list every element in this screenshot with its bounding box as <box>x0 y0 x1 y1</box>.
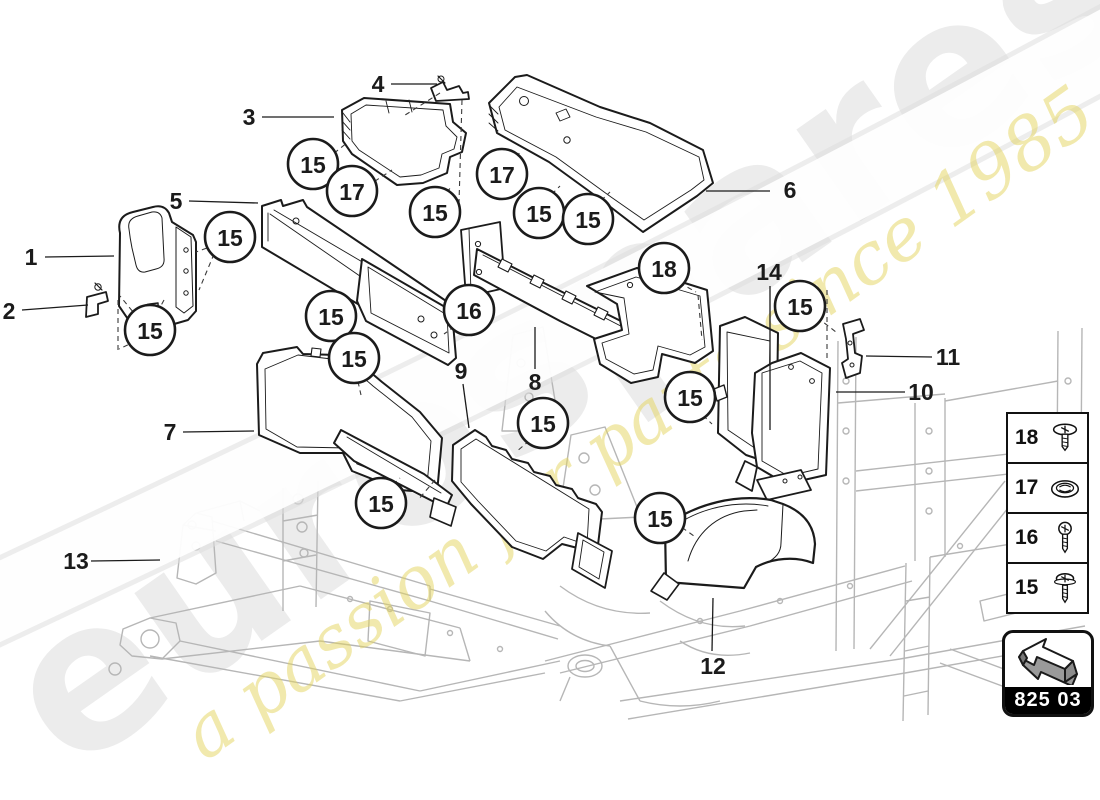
leader-line <box>45 256 114 257</box>
part-label-11: 11 <box>936 344 961 370</box>
leader-line <box>866 356 932 357</box>
part-label-5: 5 <box>170 188 183 214</box>
part-label-2: 2 <box>3 298 16 324</box>
parts-diagram-page: eurosparesa passion for parts since 1985… <box>0 0 1100 800</box>
page-code-box: 825 03 <box>1002 630 1094 717</box>
svg-text:15: 15 <box>422 200 448 226</box>
pan-screw-icon <box>1047 566 1083 610</box>
part-label-8: 8 <box>529 369 542 395</box>
callout-circle[interactable]: 16 <box>444 285 494 335</box>
part-label-9: 9 <box>455 358 468 384</box>
legend-number: 16 <box>1015 526 1038 550</box>
callout-circle[interactable]: 17 <box>327 166 377 216</box>
svg-text:15: 15 <box>341 346 367 372</box>
legend-number: 17 <box>1015 476 1038 500</box>
callout-circle[interactable]: 15 <box>775 281 825 331</box>
svg-text:15: 15 <box>787 294 813 320</box>
part-label-14: 14 <box>756 259 782 285</box>
svg-text:15: 15 <box>368 491 394 517</box>
callout-circle[interactable]: 18 <box>639 243 689 293</box>
svg-text:15: 15 <box>300 152 326 178</box>
callout-circle[interactable]: 15 <box>205 212 255 262</box>
callout-circle[interactable]: 17 <box>477 149 527 199</box>
legend-row-17[interactable]: 17 <box>1008 464 1087 514</box>
page-code: 825 03 <box>1005 687 1091 714</box>
legend-row-18[interactable]: 18 <box>1008 414 1087 464</box>
leader-line <box>189 201 258 203</box>
part-label-7: 7 <box>164 419 177 445</box>
callout-circle[interactable]: 15 <box>665 372 715 422</box>
svg-text:15: 15 <box>677 385 703 411</box>
callout-circle[interactable]: 15 <box>514 188 564 238</box>
fastener-legend: 18171615 <box>1006 412 1089 614</box>
svg-text:17: 17 <box>489 162 515 188</box>
grommet-nut-icon <box>1047 466 1083 510</box>
callout-circle[interactable]: 15 <box>356 478 406 528</box>
legend-row-16[interactable]: 16 <box>1008 514 1087 564</box>
callout-circle[interactable]: 15 <box>518 398 568 448</box>
callout-circle[interactable]: 15 <box>329 333 379 383</box>
callout-circle[interactable]: 15 <box>125 305 175 355</box>
svg-text:15: 15 <box>647 506 673 532</box>
callout-circle[interactable]: 15 <box>563 194 613 244</box>
button-screw-icon <box>1047 516 1083 560</box>
part-label-3: 3 <box>243 104 256 130</box>
svg-text:15: 15 <box>530 411 556 437</box>
svg-text:16: 16 <box>456 298 482 324</box>
part-label-12: 12 <box>700 653 726 679</box>
svg-text:15: 15 <box>217 225 243 251</box>
leader-line <box>712 598 713 651</box>
part-label-4: 4 <box>372 71 385 97</box>
svg-text:15: 15 <box>137 318 163 344</box>
leader-line <box>22 305 88 310</box>
svg-text:15: 15 <box>526 201 552 227</box>
part-label-13: 13 <box>63 548 89 574</box>
callout-circle[interactable]: 15 <box>635 493 685 543</box>
part-label-10: 10 <box>908 379 934 405</box>
direction-arrow-icon <box>1005 633 1091 687</box>
legend-number: 15 <box>1015 576 1038 600</box>
part-label-1: 1 <box>25 244 38 270</box>
legend-number: 18 <box>1015 426 1038 450</box>
heat-shield-diagram: eurosparesa passion for parts since 1985… <box>0 0 1100 800</box>
svg-text:15: 15 <box>575 207 601 233</box>
dashed-line <box>199 254 214 290</box>
washer-screw-icon <box>1047 416 1083 460</box>
svg-text:18: 18 <box>651 256 677 282</box>
svg-text:15: 15 <box>318 304 344 330</box>
part-label-6: 6 <box>784 177 797 203</box>
svg-text:17: 17 <box>339 179 365 205</box>
callout-circle[interactable]: 15 <box>410 187 460 237</box>
legend-row-15[interactable]: 15 <box>1008 564 1087 612</box>
